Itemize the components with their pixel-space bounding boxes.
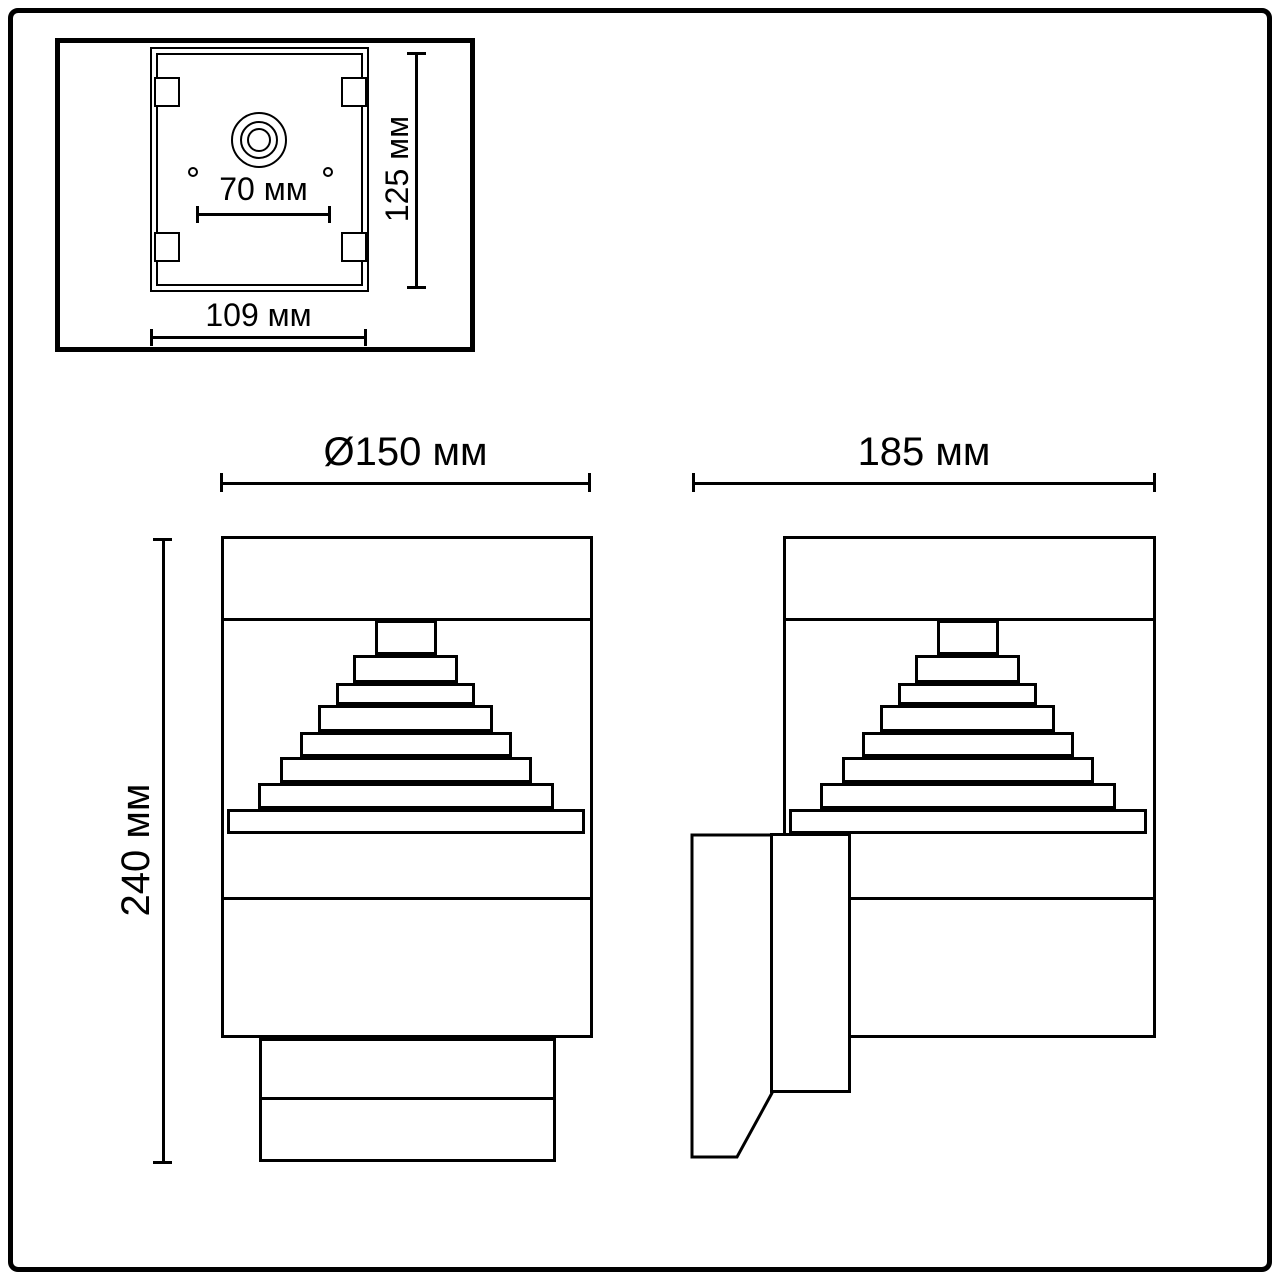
side-pyramid-tier-3 xyxy=(898,683,1037,705)
corner-tab-top-left xyxy=(154,77,180,107)
dim-hole-spacing-tick-left xyxy=(196,206,199,223)
wall-mount-column xyxy=(770,833,851,1093)
corner-tab-top-right xyxy=(341,77,367,107)
dim-diameter-tick-right xyxy=(588,473,591,492)
corner-tab-bottom-left xyxy=(154,232,180,262)
side-pyramid-tier-7 xyxy=(820,783,1116,809)
dim-diameter-label: Ø150 мм xyxy=(220,430,591,474)
front-pyramid-tier-8 xyxy=(227,809,585,834)
side-pyramid-tier-6 xyxy=(842,757,1094,783)
side-housing-bottom-edge xyxy=(850,1035,1156,1038)
side-pyramid-tier-2 xyxy=(915,655,1020,683)
side-pyramid-tier-4 xyxy=(880,705,1055,732)
wall-mount-plate xyxy=(690,833,774,1159)
dim-plate-height-tick-bottom xyxy=(407,286,426,289)
corner-tab-bottom-right xyxy=(341,232,367,262)
dim-plate-width-line xyxy=(150,336,367,339)
dim-hole-spacing-line xyxy=(196,213,331,216)
front-pyramid-tier-7 xyxy=(258,783,554,809)
dim-depth-line xyxy=(692,482,1156,485)
side-housing-left-edge xyxy=(783,536,786,837)
front-base-cylinder xyxy=(259,1038,556,1162)
dim-depth-tick-right xyxy=(1153,473,1156,492)
technical-drawing-canvas: 70 мм 109 мм 125 мм Ø150 мм 240 мм 185 м… xyxy=(0,0,1280,1280)
dim-depth-label: 185 мм xyxy=(692,430,1156,474)
front-pyramid-tier-4 xyxy=(318,705,493,732)
side-band-line xyxy=(850,897,1156,900)
front-pyramid-tier-2 xyxy=(353,655,458,683)
dim-plate-height-tick-top xyxy=(407,52,426,55)
side-housing-top-edge xyxy=(783,536,1156,539)
front-pyramid-tier-1 xyxy=(375,620,437,655)
dim-plate-width-tick-right xyxy=(364,329,367,346)
front-pyramid-tier-3 xyxy=(336,683,475,705)
dim-plate-height-line xyxy=(415,52,418,289)
dim-total-height-label: 240 мм xyxy=(114,740,158,960)
dim-diameter-line xyxy=(220,482,591,485)
front-base-cylinder-line xyxy=(259,1097,556,1100)
cable-hub-circle-inner xyxy=(247,128,271,152)
front-pyramid-tier-6 xyxy=(280,757,532,783)
dim-total-height-tick-top xyxy=(153,538,172,541)
dim-plate-height-label: 125 мм xyxy=(380,94,414,244)
dim-total-height-tick-bottom xyxy=(153,1161,172,1164)
side-pyramid-tier-8 xyxy=(789,809,1147,834)
front-pyramid-tier-5 xyxy=(300,732,512,757)
dim-diameter-tick-left xyxy=(220,473,223,492)
dim-total-height-line xyxy=(162,538,165,1164)
dim-plate-width-tick-left xyxy=(150,329,153,346)
side-pyramid-tier-1 xyxy=(937,620,999,655)
side-housing-right-edge xyxy=(1153,536,1156,1038)
dim-depth-tick-left xyxy=(692,473,695,492)
dim-hole-spacing-tick-right xyxy=(328,206,331,223)
front-band-line xyxy=(221,897,593,900)
dim-plate-width-label: 109 мм xyxy=(150,298,367,332)
dim-hole-spacing-label: 70 мм xyxy=(186,172,341,206)
side-pyramid-tier-5 xyxy=(862,732,1074,757)
